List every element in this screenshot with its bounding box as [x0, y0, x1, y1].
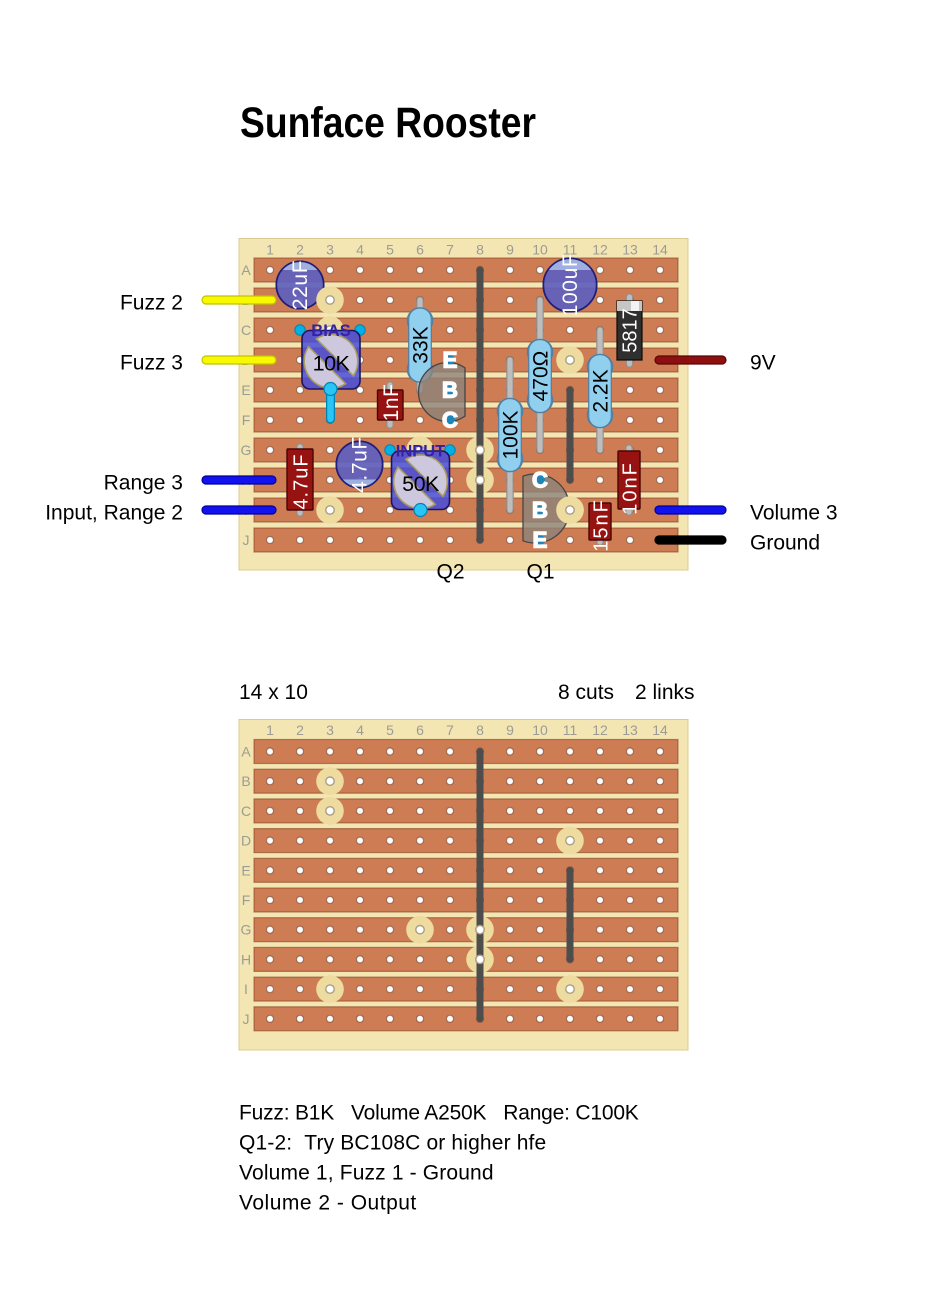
svg-text:Q2: Q2 — [436, 561, 464, 584]
svg-text:5817: 5817 — [620, 308, 642, 353]
svg-text:1nF: 1nF — [380, 384, 403, 422]
svg-text:470Ω: 470Ω — [530, 351, 553, 402]
svg-text:7: 7 — [446, 242, 454, 258]
svg-text:Volume 3: Volume 3 — [750, 502, 838, 525]
svg-text:13: 13 — [622, 722, 638, 738]
svg-text:F: F — [242, 412, 251, 428]
svg-text:J: J — [243, 1011, 250, 1027]
svg-text:22uF: 22uF — [289, 260, 312, 310]
svg-text:BIAS: BIAS — [311, 322, 350, 340]
svg-text:7: 7 — [446, 722, 454, 738]
svg-text:2 links: 2 links — [635, 681, 695, 704]
svg-text:B: B — [442, 378, 458, 403]
svg-text:8: 8 — [476, 722, 484, 738]
svg-text:Q1-2: Try BC108C or higher hf: Q1-2: Try BC108C or higher hfe — [239, 1132, 546, 1155]
svg-text:B: B — [532, 498, 548, 523]
svg-text:6: 6 — [416, 722, 424, 738]
svg-text:50K: 50K — [402, 472, 440, 496]
svg-text:4: 4 — [356, 242, 364, 258]
svg-text:9V: 9V — [750, 352, 776, 375]
svg-text:14: 14 — [652, 242, 668, 258]
svg-text:10K: 10K — [313, 351, 351, 375]
svg-text:15nF: 15nF — [591, 498, 613, 552]
svg-text:2.2K: 2.2K — [590, 369, 613, 412]
svg-text:I: I — [244, 981, 248, 997]
svg-text:10nF: 10nF — [620, 461, 642, 515]
svg-text:14 x 10: 14 x 10 — [239, 681, 308, 704]
svg-text:4.7uF: 4.7uF — [349, 436, 372, 493]
svg-text:9: 9 — [506, 722, 514, 738]
svg-text:Input, Range 2: Input, Range 2 — [45, 502, 183, 525]
svg-text:Ground: Ground — [750, 532, 820, 555]
svg-text:Q1: Q1 — [526, 561, 554, 584]
svg-text:4: 4 — [356, 722, 364, 738]
svg-text:2: 2 — [296, 722, 304, 738]
svg-text:G: G — [241, 442, 252, 458]
svg-text:Fuzz 3: Fuzz 3 — [120, 352, 183, 375]
svg-text:13: 13 — [622, 242, 638, 258]
svg-text:C: C — [241, 322, 251, 338]
svg-text:9: 9 — [506, 242, 514, 258]
svg-text:14: 14 — [652, 722, 668, 738]
svg-text:D: D — [241, 833, 251, 849]
svg-text:5: 5 — [386, 242, 394, 258]
svg-text:33K: 33K — [410, 326, 433, 363]
svg-text:C: C — [532, 468, 548, 493]
svg-text:E: E — [533, 528, 548, 553]
svg-text:8 cuts: 8 cuts — [558, 681, 614, 704]
svg-text:12: 12 — [592, 722, 608, 738]
svg-text:11: 11 — [563, 722, 578, 738]
svg-text:Fuzz: B1K Volume A250K Ran: Fuzz: B1K Volume A250K Range: C100K — [239, 1102, 639, 1125]
svg-text:4.7uF: 4.7uF — [291, 453, 313, 509]
svg-text:E: E — [241, 862, 250, 878]
svg-text:1: 1 — [266, 242, 274, 258]
svg-text:10: 10 — [532, 242, 548, 258]
svg-text:2: 2 — [296, 242, 304, 258]
svg-text:A: A — [241, 744, 251, 760]
svg-text:100K: 100K — [500, 410, 523, 459]
svg-text:6: 6 — [416, 242, 424, 258]
svg-text:Volume 2 - Output: Volume 2 - Output — [239, 1192, 417, 1215]
svg-text:3: 3 — [326, 722, 334, 738]
svg-text:100uF: 100uF — [559, 254, 582, 317]
svg-text:5: 5 — [386, 722, 394, 738]
svg-text:Volume 1, Fuzz 1 - Ground: Volume 1, Fuzz 1 - Ground — [239, 1162, 494, 1185]
svg-text:F: F — [242, 892, 251, 908]
svg-text:H: H — [241, 951, 251, 967]
svg-text:12: 12 — [592, 242, 608, 258]
svg-text:E: E — [443, 348, 458, 373]
svg-text:10: 10 — [532, 722, 548, 738]
svg-text:G: G — [241, 922, 252, 938]
svg-text:1: 1 — [266, 722, 274, 738]
svg-text:8: 8 — [476, 242, 484, 258]
svg-text:J: J — [243, 532, 250, 548]
svg-text:INPUT: INPUT — [396, 443, 446, 461]
svg-text:C: C — [241, 803, 251, 819]
svg-text:B: B — [241, 773, 250, 789]
svg-text:A: A — [241, 262, 251, 278]
svg-text:3: 3 — [326, 242, 334, 258]
svg-text:Sunface Rooster: Sunface Rooster — [240, 99, 536, 147]
svg-text:Fuzz 2: Fuzz 2 — [120, 292, 183, 315]
svg-text:Range 3: Range 3 — [104, 472, 183, 495]
svg-text:C: C — [442, 408, 458, 433]
svg-text:E: E — [241, 382, 250, 398]
